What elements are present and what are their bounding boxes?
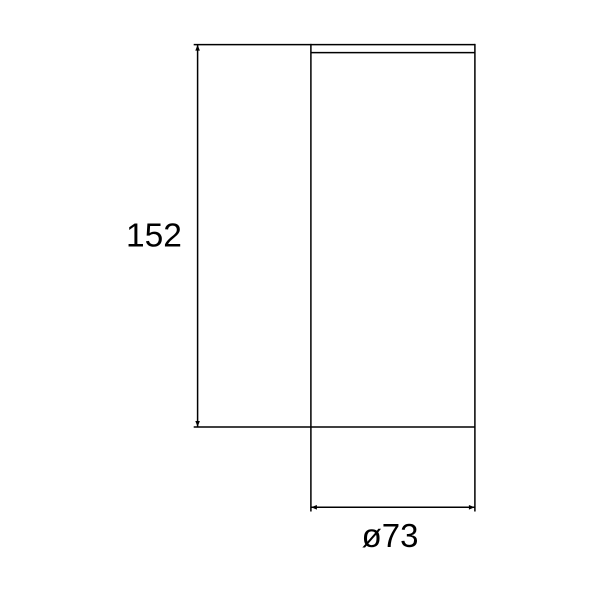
svg-text:152: 152 xyxy=(126,218,182,255)
svg-text:ø73: ø73 xyxy=(362,517,419,554)
